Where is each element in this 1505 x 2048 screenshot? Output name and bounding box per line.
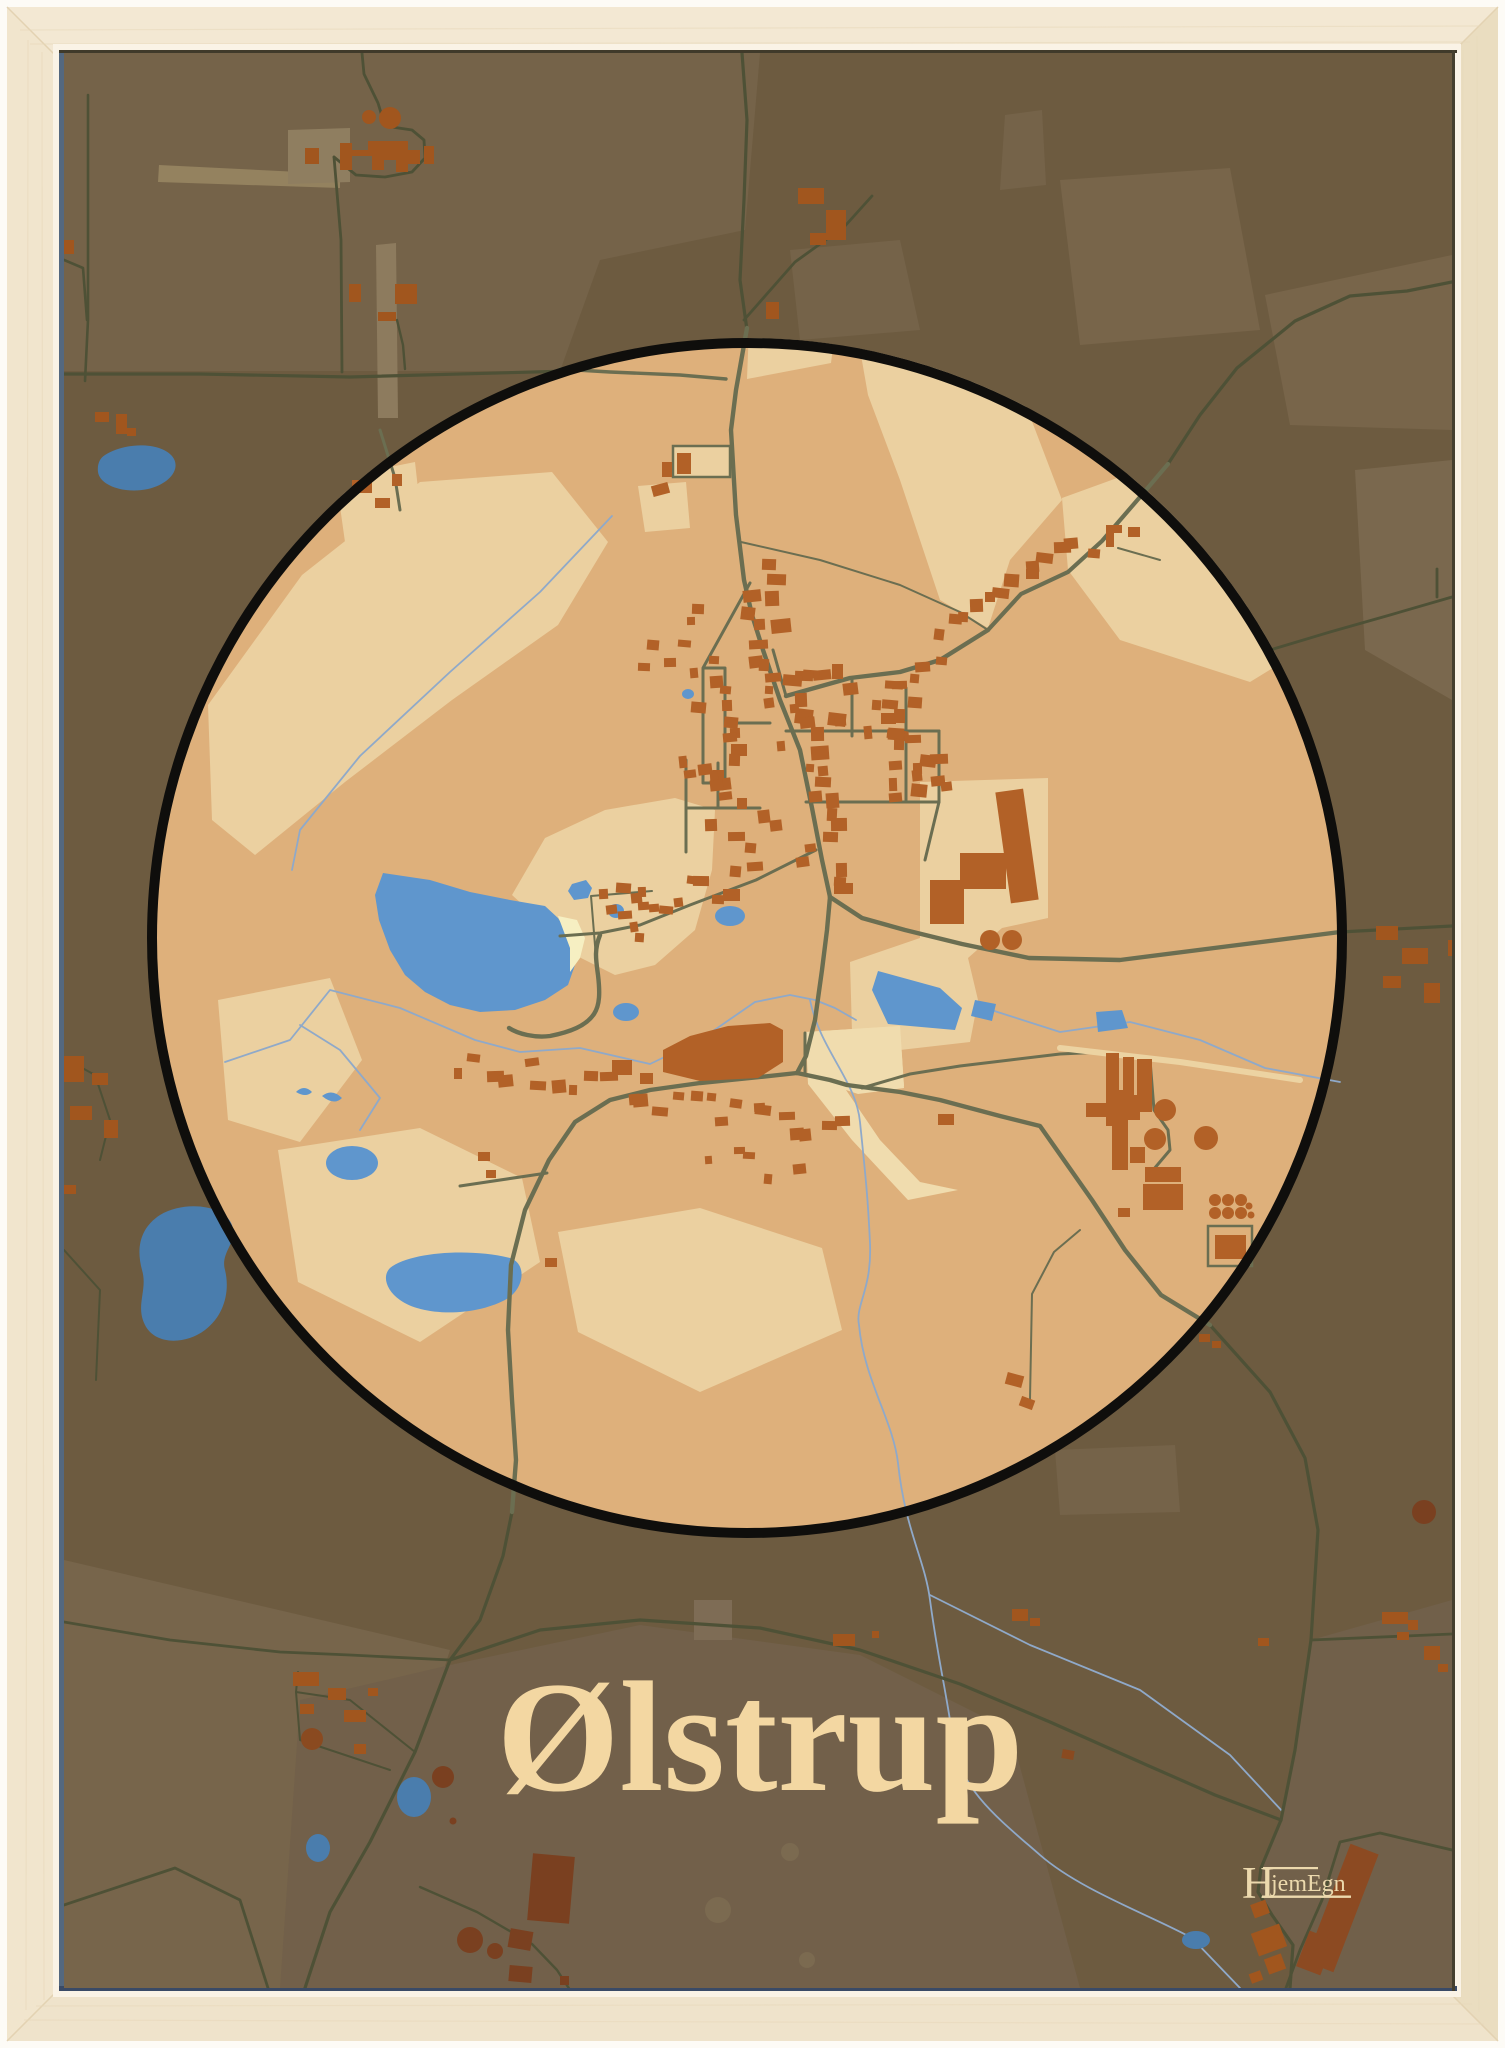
svg-text:Ølstrup: Ølstrup	[497, 1650, 1024, 1825]
svg-text:H: H	[1242, 1858, 1275, 1908]
svg-text:jemEgn: jemEgn	[1270, 1871, 1346, 1897]
